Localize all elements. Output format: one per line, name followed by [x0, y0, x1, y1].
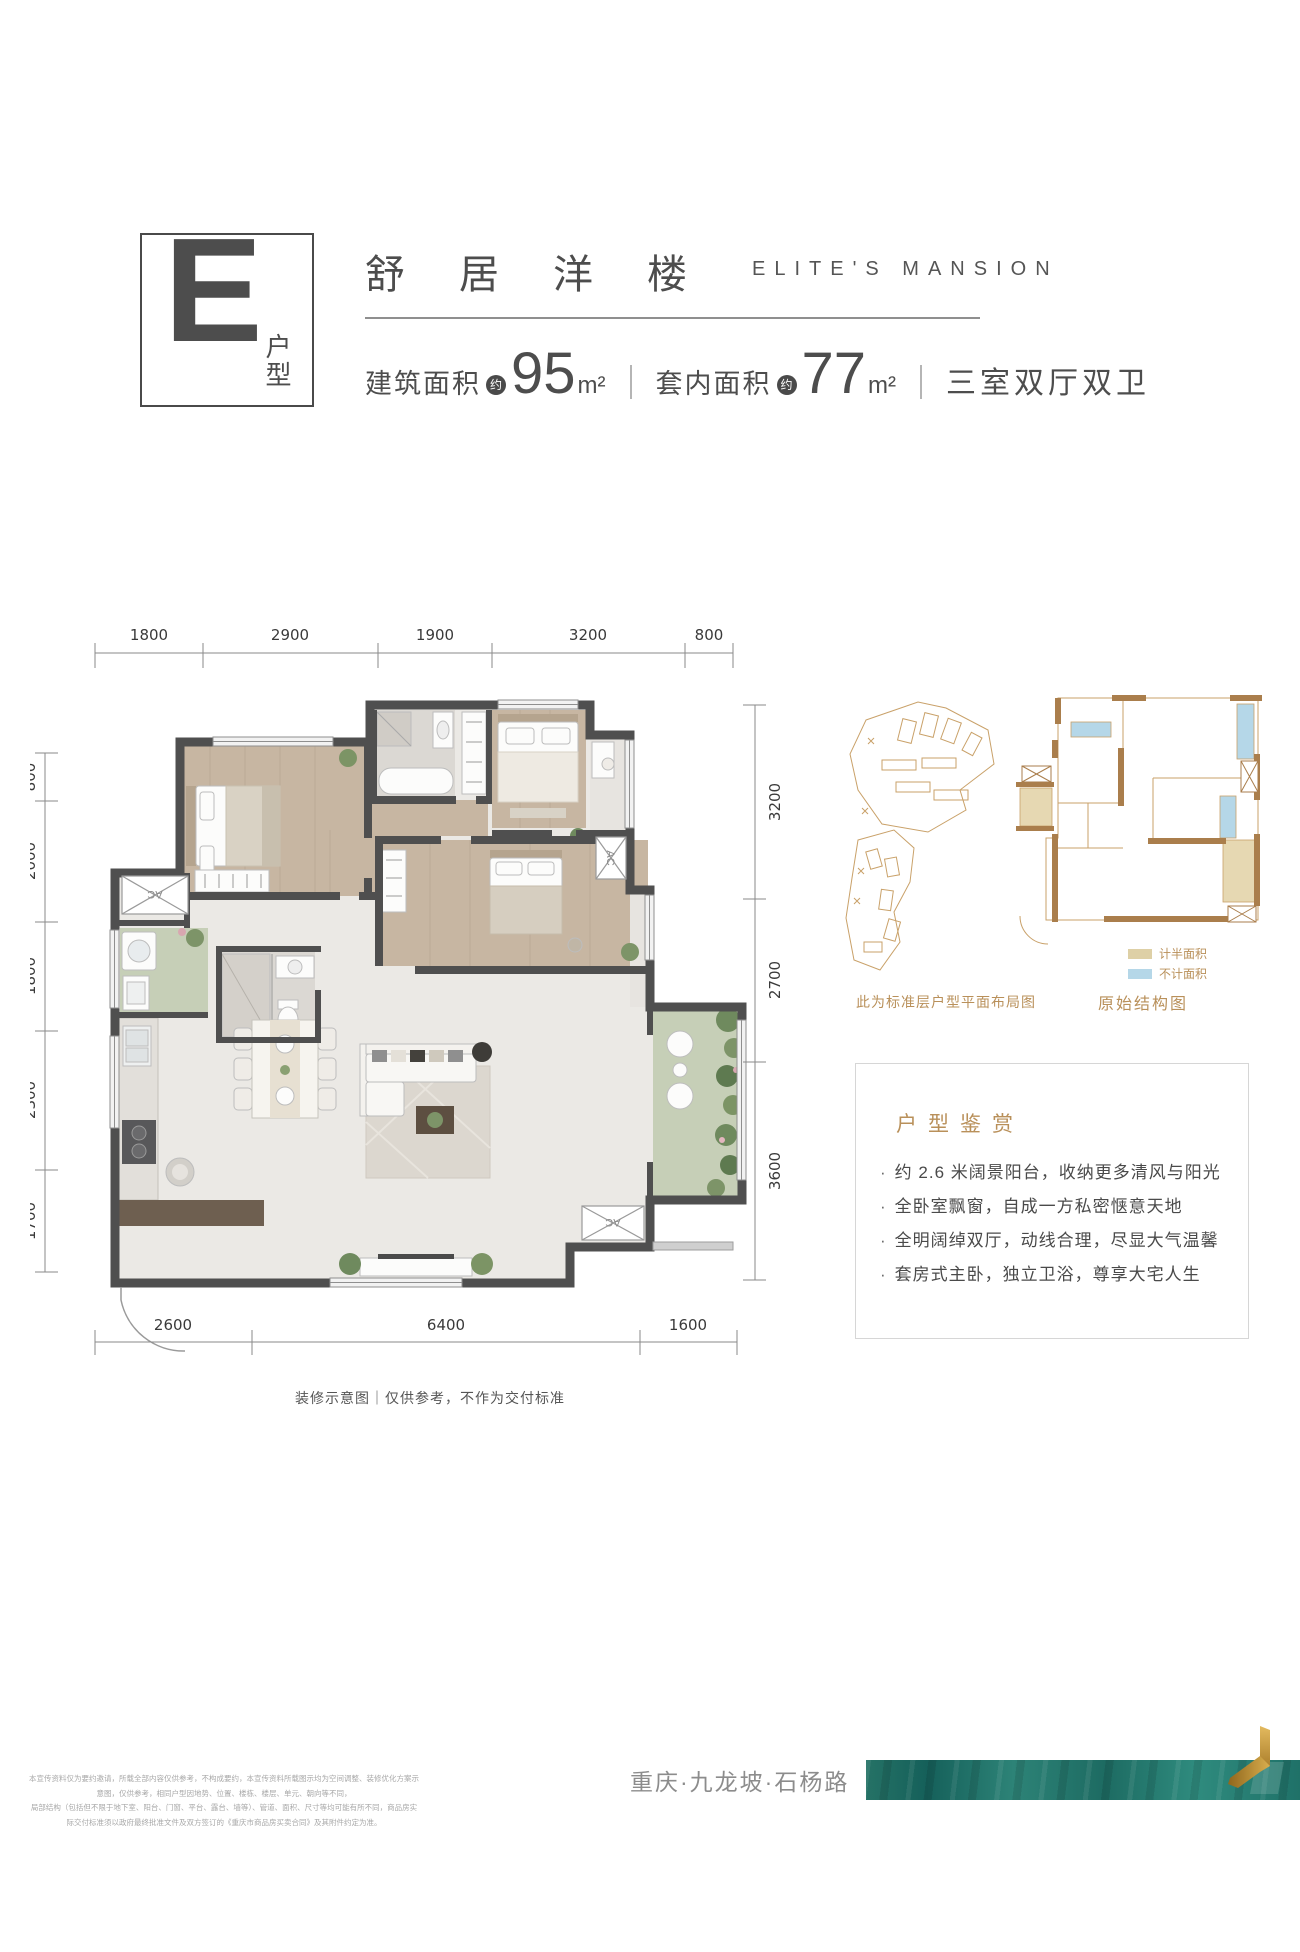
disclaimer-line-1: 本宣传资料仅为要约邀请，所载全部内容仅供参考，不构成要约，本宣传资料所载图示均为…	[28, 1772, 420, 1801]
dim-top-4: 3200	[569, 626, 607, 644]
floorplan-caption: 装修示意图｜仅供参考，不作为交付标准	[240, 1388, 620, 1408]
dim-right-1: 3200	[766, 783, 784, 821]
legal-disclaimer: 本宣传资料仅为要约邀请，所载全部内容仅供参考，不构成要约，本宣传资料所载图示均为…	[28, 1772, 420, 1831]
highlight-item: · 约 2.6 米阔景阳台，收纳更多清风与阳光	[880, 1156, 1230, 1190]
highlight-item: · 全卧室飘窗，自成一方私密惬意天地	[880, 1190, 1230, 1224]
floorplan-poster-page: E 户型 舒居洋楼 ELITE'S MANSION 建筑面积 约 95 m² 套…	[0, 0, 1300, 1952]
dim-top-5: 800	[695, 626, 724, 644]
unit-type-box: E 户型	[140, 233, 314, 407]
dim-bottom-1: 2600	[154, 1316, 192, 1334]
siteplan-caption: 此为标准层户型平面布局图	[856, 992, 1036, 1012]
page-title-cn: 舒居洋楼	[365, 242, 741, 300]
dim-top-2: 2900	[271, 626, 309, 644]
ac-label: AC	[605, 1216, 620, 1228]
dim-right-3: 3600	[766, 1152, 784, 1190]
ac-label: AC	[147, 888, 162, 900]
highlights-card: 户型鉴赏 · 约 2.6 米阔景阳台，收纳更多清风与阳光 · 全卧室飘窗，自成一…	[855, 1063, 1249, 1339]
highlight-text: 约 2.6 米阔景阳台，收纳更多清风与阳光	[895, 1156, 1221, 1190]
unit-type-letter: E	[164, 217, 263, 365]
dim-left-4: 2300	[30, 1081, 39, 1119]
approx-badge: 约	[486, 375, 506, 395]
highlight-item: · 套房式主卧，独立卫浴，尊享大宅人生	[880, 1258, 1230, 1292]
legend-label: 不计面积	[1159, 964, 1207, 984]
legend-label: 计半面积	[1159, 944, 1207, 964]
inner-area-unit: m²	[868, 372, 896, 400]
dim-bottom-2: 6400	[427, 1316, 465, 1334]
page-title-en: ELITE'S MANSION	[752, 258, 1059, 281]
inner-area-label: 套内面积	[656, 362, 772, 401]
bullet-dot: ·	[880, 1224, 887, 1258]
legend-item-excluded-area: 不计面积	[1128, 964, 1207, 984]
dim-left-3: 1800	[30, 957, 39, 995]
ac-label: AC	[604, 850, 616, 865]
area-separator	[630, 365, 632, 399]
project-location: 重庆·九龙坡·石杨路	[630, 1763, 849, 1797]
siteplan-buildings	[854, 713, 982, 952]
dim-right-2: 2700	[766, 961, 784, 999]
dim-left-1: 800	[30, 763, 39, 792]
highlight-text: 全明阔绰双厅，动线合理，尽显大气温馨	[895, 1224, 1219, 1258]
bullet-dot: ·	[880, 1258, 887, 1292]
area-summary-row: 建筑面积 约 95 m² 套内面积 约 77 m² 三室双厅双卫	[365, 340, 1195, 407]
structure-door-arc	[1020, 916, 1048, 944]
highlight-text: 套房式主卧，独立卫浴，尊享大宅人生	[895, 1258, 1201, 1292]
disclaimer-line-2: 局部结构（包括但不限于地下室、阳台、门窗、平台、露台、墙等）、管道、面积、尺寸等…	[28, 1801, 420, 1830]
dim-top-3: 1900	[416, 626, 454, 644]
highlight-text: 全卧室飘窗，自成一方私密惬意天地	[895, 1190, 1183, 1224]
siteplan-graphic	[838, 698, 1008, 983]
room-layout-text: 三室双厅双卫	[946, 358, 1150, 402]
area-separator	[920, 365, 922, 399]
built-area-value: 95	[511, 340, 576, 407]
brand-logo-icon	[1214, 1724, 1290, 1802]
legend-swatch-blue	[1128, 969, 1152, 979]
bullet-dot: ·	[880, 1156, 887, 1190]
built-area-unit: m²	[578, 372, 606, 400]
built-area-label: 建筑面积	[365, 362, 481, 401]
structure-legend: 计半面积 不计面积	[1128, 944, 1207, 984]
structure-diagram	[1008, 688, 1296, 973]
dim-left-5: 1700	[30, 1202, 39, 1240]
bullet-dot: ·	[880, 1190, 887, 1224]
legend-swatch-tan	[1128, 949, 1152, 959]
dim-bottom-3: 1600	[669, 1316, 707, 1334]
legend-item-half-area: 计半面积	[1128, 944, 1207, 964]
dim-top-1: 1800	[130, 626, 168, 644]
dim-left-2: 2000	[30, 842, 39, 880]
highlights-title: 户型鉴赏	[896, 1108, 1024, 1138]
structure-caption: 原始结构图	[1098, 990, 1188, 1014]
approx-badge: 约	[777, 375, 797, 395]
title-divider	[365, 317, 980, 319]
floorplan-graphic: AC AC AC 1800 2900 1900 3200	[30, 600, 810, 1460]
unit-type-label: 户型	[261, 333, 292, 389]
inner-area-value: 77	[802, 340, 867, 407]
highlight-item: · 全明阔绰双厅，动线合理，尽显大气温馨	[880, 1224, 1230, 1258]
highlights-list: · 约 2.6 米阔景阳台，收纳更多清风与阳光 · 全卧室飘窗，自成一方私密惬意…	[880, 1156, 1230, 1292]
